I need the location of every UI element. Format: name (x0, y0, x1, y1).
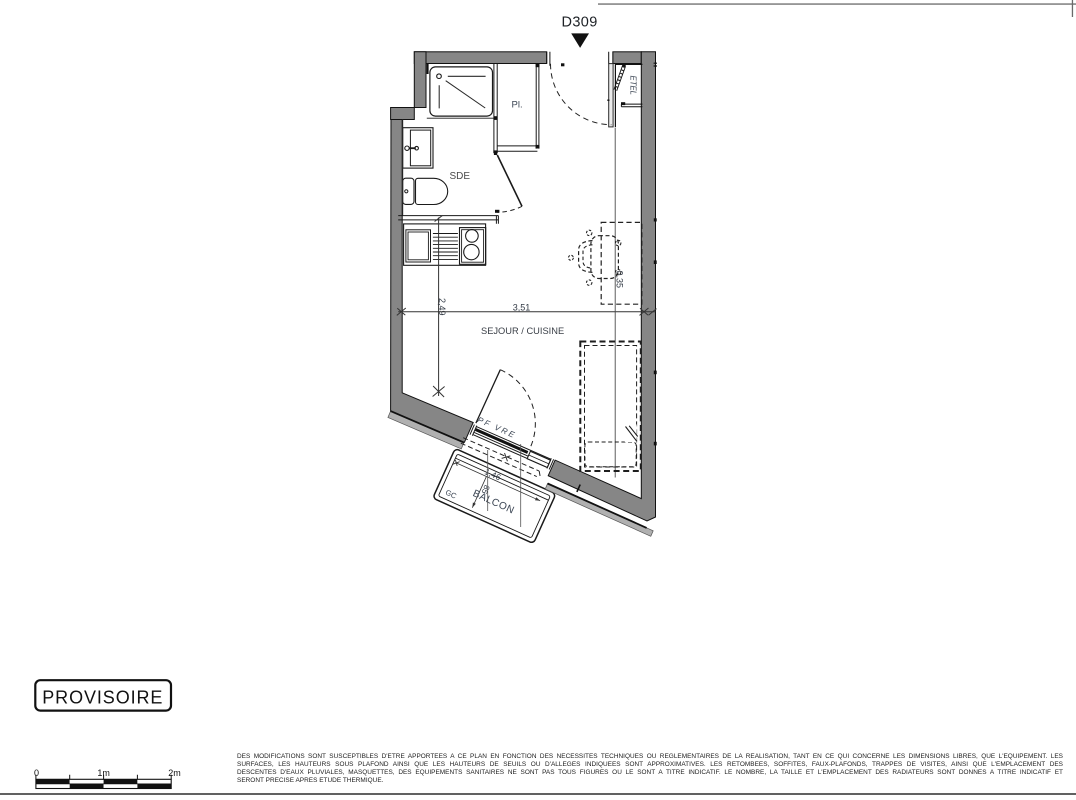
svg-text:0,35: 0,35 (614, 271, 624, 289)
svg-text:3,51: 3,51 (513, 302, 531, 312)
svg-text:2,49: 2,49 (437, 298, 447, 316)
svg-text:SEJOUR / CUISINE: SEJOUR / CUISINE (481, 326, 564, 336)
svg-text:2m: 2m (168, 768, 181, 778)
svg-text:SDE: SDE (450, 171, 471, 182)
svg-text:ETEL: ETEL (629, 76, 638, 96)
svg-text:D309: D309 (561, 15, 597, 31)
svg-text:PROVISOIRE: PROVISOIRE (42, 687, 163, 707)
svg-text:Pl.: Pl. (512, 99, 523, 110)
svg-text:0: 0 (34, 768, 39, 778)
